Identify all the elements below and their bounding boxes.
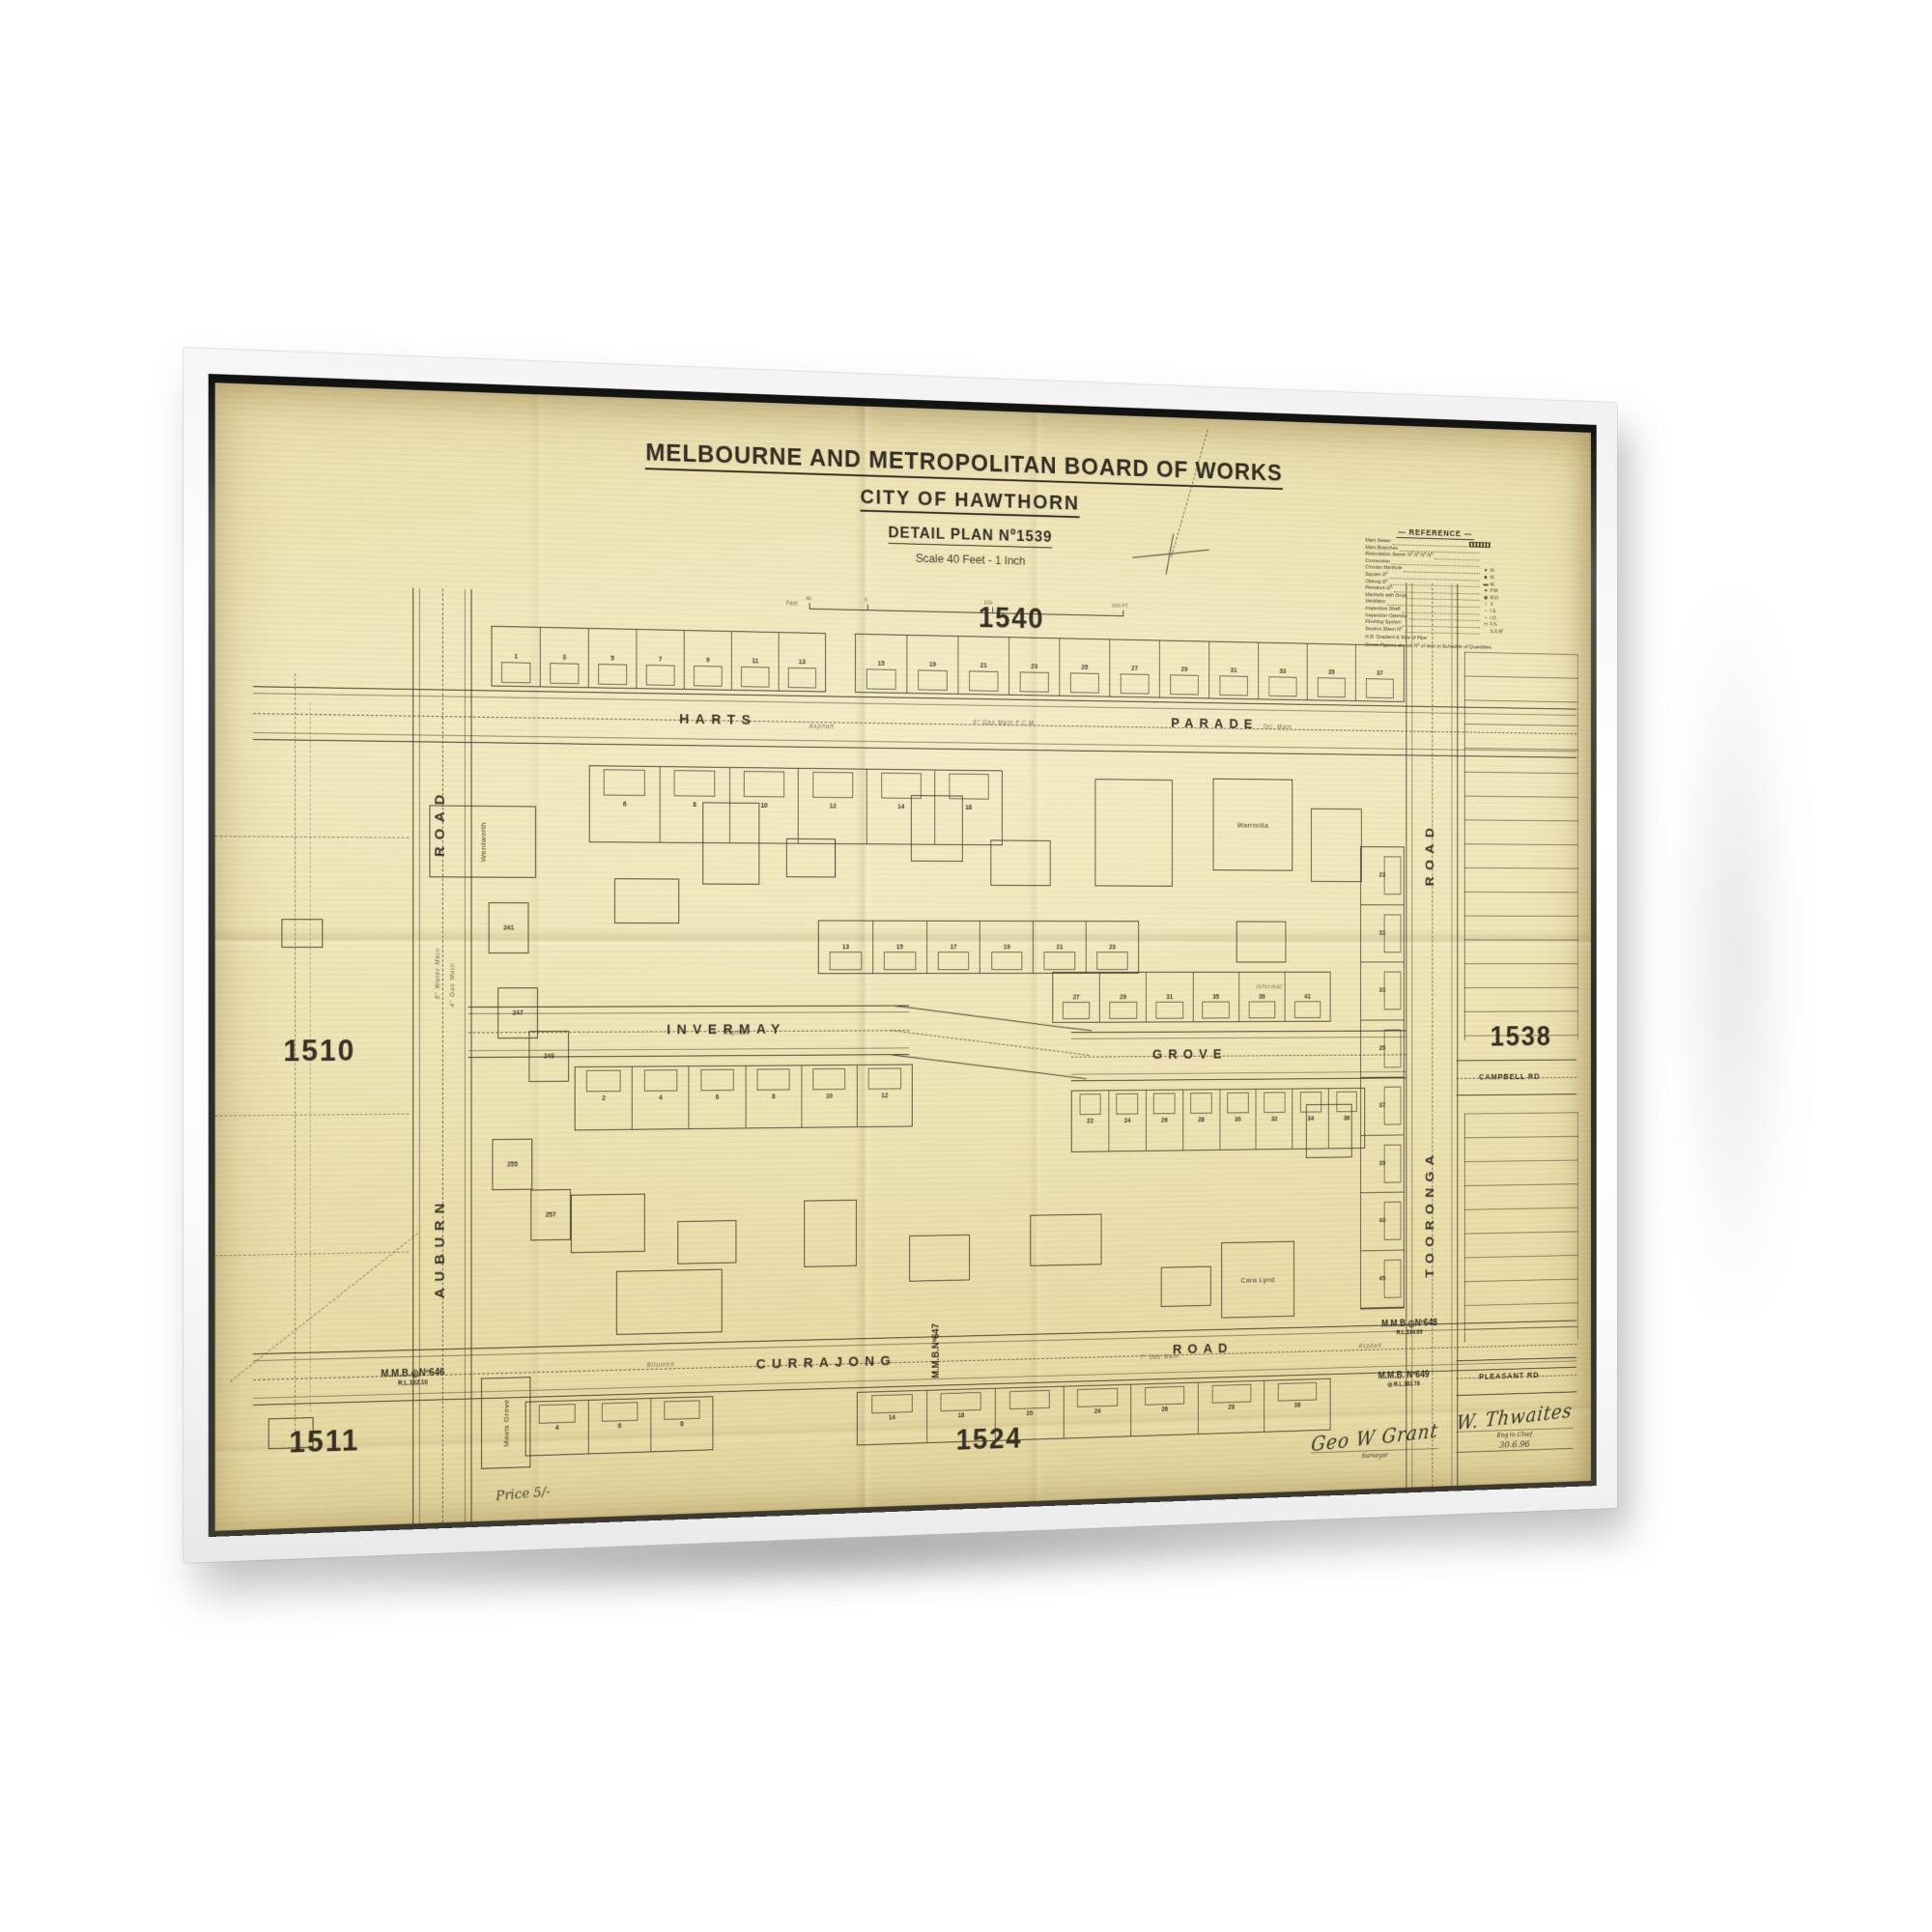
- plan-number-title: DETAIL PLAN Nº1539: [889, 524, 1053, 549]
- lot-strip-harts-north-east: 1519212325272931333537: [855, 634, 1405, 702]
- lot: 11: [732, 632, 780, 691]
- lot-number: 15: [896, 944, 903, 951]
- lot: 19: [980, 922, 1034, 973]
- lot-number: 10: [760, 803, 767, 810]
- villa-name: Cara Lynd: [1240, 1275, 1274, 1284]
- lot: 35: [1361, 1020, 1404, 1078]
- lot: 45: [1361, 1250, 1404, 1309]
- lot-frontage-ticks: [1464, 652, 1578, 1041]
- lot: 27: [1053, 973, 1100, 1022]
- building-outline: [909, 1235, 970, 1282]
- lot-number: 38: [1294, 1402, 1301, 1408]
- lot-strip-harts-north-west: 135791113: [491, 626, 826, 693]
- house-number: 241: [503, 924, 514, 931]
- lot-number: 10: [826, 1093, 833, 1099]
- lot-number: 35: [1328, 669, 1335, 676]
- road-annotation: Asphalt: [724, 1030, 750, 1037]
- road-annotation: Asphalt: [1358, 1343, 1381, 1350]
- lot-number: 12: [881, 1093, 888, 1099]
- lot: 12: [799, 769, 867, 843]
- lot: 26: [1131, 1383, 1198, 1436]
- lot: 21: [958, 637, 1009, 695]
- lot-number: 32: [1271, 1116, 1278, 1122]
- building-outline: [1094, 779, 1172, 887]
- lot: 43: [1361, 1192, 1404, 1250]
- lot: 24: [1064, 1385, 1131, 1438]
- lot-number: 31: [1166, 994, 1173, 1001]
- street-name-parade: PARADE: [1171, 716, 1258, 732]
- lot-number: 12: [830, 803, 837, 810]
- lot-number: 6: [618, 1423, 622, 1430]
- lot-number: 33: [1379, 987, 1386, 993]
- street-name-tooronga: TOORONGA: [1423, 1150, 1436, 1278]
- lot-number: 8: [693, 802, 696, 809]
- lot-number: 23: [1379, 872, 1386, 879]
- lot-number: 25: [1081, 665, 1088, 671]
- street-name-tooronga-road: ROAD: [1423, 822, 1436, 887]
- lot-number: 27: [1073, 994, 1080, 1001]
- lot-number: 18: [957, 1412, 964, 1419]
- lot-number: 28: [1228, 1404, 1235, 1410]
- lot-number: 22: [1087, 1118, 1094, 1124]
- picture-frame: MELBOURNE AND METROPOLITAN BOARD OF WORK…: [184, 348, 1617, 1563]
- road-annotation: 7' Gas Main: [1141, 1353, 1179, 1361]
- framed-canvas: MELBOURNE AND METROPOLITAN BOARD OF WORK…: [184, 348, 1617, 1563]
- lot: 14: [858, 1391, 927, 1445]
- engineer-signature: W. Thwaites Eng in Chief 30.6.96: [1457, 1405, 1573, 1453]
- lot: 23: [1009, 638, 1060, 696]
- lot: 39: [1239, 973, 1285, 1021]
- villa-cara-lynd: Cara Lynd: [1221, 1241, 1294, 1319]
- villa-mavis-grove: Mavis Grove: [481, 1377, 530, 1469]
- lot-number: 15: [878, 661, 885, 668]
- house-auburn: 241: [489, 902, 529, 953]
- lot-number: 37: [1379, 1103, 1386, 1110]
- lot: 27: [1110, 639, 1160, 696]
- scale-bar-unit: Feet: [786, 601, 798, 608]
- lot-number: 35: [1212, 994, 1219, 1001]
- lot-number: 21: [1057, 944, 1064, 951]
- lot-number: 6: [716, 1094, 720, 1100]
- lot-number: 4: [555, 1425, 559, 1432]
- wall-shadow: [1662, 415, 1806, 1497]
- lot: 31: [1209, 642, 1259, 699]
- lot-number: 19: [929, 662, 936, 668]
- scale-tick-label: 200 FT.: [1112, 604, 1129, 610]
- lot: 4: [633, 1066, 690, 1129]
- lot: 20: [996, 1387, 1065, 1440]
- building-outline: [677, 1220, 736, 1264]
- lot: 2: [576, 1067, 633, 1130]
- lot-number: 43: [1379, 1218, 1386, 1225]
- lot: 19: [907, 636, 958, 694]
- street-name-currajong-road: ROAD: [1173, 1341, 1234, 1358]
- surveyor-signature: Geo W Grant Surveyor: [1311, 1425, 1438, 1462]
- lot-strip-tooronga-west: 2331333537394345: [1360, 846, 1405, 1309]
- lot: 29: [1100, 973, 1147, 1022]
- lot: 38: [1264, 1379, 1329, 1432]
- villa-name: Warrinilla: [1237, 820, 1269, 829]
- street-name-pleasant: PLEASANT RD: [1479, 1371, 1539, 1381]
- lot-number: 5: [611, 655, 614, 662]
- lot: 31: [1147, 973, 1193, 1022]
- frame-shadow-gap: MELBOURNE AND METROPOLITAN BOARD OF WORK…: [209, 374, 1597, 1537]
- lot: 8: [746, 1065, 802, 1127]
- lot-number: 23: [1109, 944, 1116, 951]
- lot-number: 24: [1124, 1118, 1131, 1124]
- lot-number: 35: [1379, 1045, 1386, 1052]
- lot-number: 7: [659, 656, 663, 663]
- lot: 6: [690, 1066, 746, 1128]
- building-outline: [702, 802, 759, 884]
- villa-name: Wentworth: [479, 821, 488, 862]
- lot: 26: [1147, 1091, 1183, 1151]
- benchmark-id: M.M.B.◎Nº646: [381, 1368, 444, 1380]
- lot: 35: [1193, 973, 1239, 1022]
- lot: 37: [1361, 1077, 1404, 1135]
- lot: 7: [637, 630, 684, 689]
- lot: 35: [1308, 644, 1356, 700]
- legend-symbol: ▭: [1481, 622, 1490, 629]
- lot-number: 17: [951, 944, 957, 951]
- lot: 5: [589, 629, 638, 688]
- villa-name: Mavis Grove: [501, 1399, 510, 1447]
- lot: 13: [819, 921, 873, 973]
- lot-number: 16: [965, 805, 972, 811]
- lot: 17: [927, 922, 980, 973]
- lot: 23: [1361, 847, 1404, 905]
- lot-number: 20: [1026, 1410, 1033, 1417]
- lot-strip-grove-north: 272931353941: [1052, 972, 1330, 1023]
- building-outline: [281, 919, 323, 948]
- house-number: 255: [507, 1161, 518, 1168]
- lot-number: 27: [1131, 666, 1138, 672]
- lot: 23: [1087, 922, 1138, 973]
- lot: 8: [651, 1397, 712, 1451]
- house-auburn: 249: [528, 1031, 569, 1082]
- building-outline: [614, 878, 679, 923]
- sewer-line-symbol: [1469, 542, 1491, 548]
- road-annotation: Tel. Main: [1263, 724, 1292, 731]
- building-outline: [804, 1200, 857, 1267]
- lot-strip-invermay-north: 131517192123: [818, 921, 1139, 975]
- lot-strip-invermay-south: 24681012: [575, 1065, 913, 1131]
- house-number: 257: [546, 1211, 556, 1218]
- house-number: 249: [544, 1053, 554, 1060]
- lot-strip-currajong-south-east: 14182024262838: [857, 1378, 1331, 1446]
- street-name-grove: GROVE: [1152, 1046, 1227, 1062]
- lot-number: 14: [889, 1414, 895, 1421]
- lot: 13: [780, 633, 826, 691]
- lot: 41: [1285, 973, 1329, 1021]
- scale-tick-label: 40: [806, 596, 811, 602]
- boundary-line: [295, 673, 296, 1431]
- street-name-currajong: CURRAJONG: [756, 1353, 897, 1373]
- house-auburn: 255: [492, 1139, 532, 1190]
- lot: 30: [1220, 1090, 1257, 1150]
- lot-number: 2: [602, 1095, 606, 1102]
- lot-number: 23: [1031, 664, 1037, 670]
- boundary-line: [215, 1252, 410, 1257]
- road-annotation: Informal: [1256, 984, 1282, 991]
- lot: 12: [858, 1065, 912, 1127]
- lot-number: 41: [1304, 993, 1311, 1000]
- lot: 24: [1109, 1091, 1146, 1151]
- benchmark-id: M.M.B.◎Nº648: [1381, 1319, 1437, 1330]
- lot: 21: [1034, 922, 1087, 973]
- lot-number: 14: [897, 804, 904, 810]
- lot: 6: [590, 766, 661, 841]
- lot-number: 28: [1198, 1117, 1205, 1123]
- benchmark-label: M.M.B. Nº649◎ R.L.182.76: [1378, 1370, 1430, 1388]
- lot-strip-currajong-south-west: 468: [526, 1396, 714, 1456]
- villa-warrinilla: Warrinilla: [1213, 779, 1293, 871]
- legend-label: Section Sheet Nº: [1365, 626, 1403, 634]
- signature-date: 30.6.96: [1457, 1438, 1573, 1453]
- lot-number: 26: [1161, 1117, 1168, 1123]
- lot-number: 31: [1231, 668, 1237, 674]
- lot-number: 33: [1280, 668, 1287, 675]
- boundary-line: [215, 1114, 410, 1117]
- lot-number: 9: [706, 657, 710, 664]
- building-outline: [990, 839, 1050, 886]
- legend-abbr: S.S.Nº: [1491, 629, 1505, 636]
- villa-wentworth: Wentworth: [429, 805, 536, 877]
- lot: 39: [1361, 1135, 1404, 1193]
- lot-number: 4: [659, 1094, 663, 1101]
- lot-number: 11: [752, 658, 758, 665]
- boundary-line: [310, 702, 311, 1411]
- lot-number: 13: [799, 659, 806, 666]
- lot-number: 45: [1379, 1275, 1386, 1282]
- lot: 33: [1361, 962, 1404, 1020]
- adjacent-plan-number: 1540: [979, 601, 1044, 636]
- building-outline: [1311, 809, 1362, 882]
- street-name-harts: HARTS: [679, 711, 756, 728]
- house-number: 247: [513, 1009, 524, 1016]
- house-auburn: 257: [530, 1189, 571, 1240]
- lot: 29: [1160, 640, 1209, 697]
- building-outline: [911, 795, 963, 862]
- lot: 9: [685, 631, 732, 690]
- lot: 28: [1199, 1381, 1265, 1434]
- scale-tick-label: 0: [865, 598, 867, 604]
- building-outline: [269, 1417, 314, 1449]
- benchmark-label: M.M.B.Nº647: [932, 1323, 942, 1378]
- lot: 22: [1072, 1091, 1110, 1151]
- lot-number: 31: [1379, 930, 1386, 936]
- building-outline: [616, 1269, 723, 1335]
- lot-number: 6: [623, 801, 627, 808]
- building-outline: [1030, 1214, 1101, 1266]
- lot: 33: [1259, 643, 1308, 700]
- legend-title: REFERENCE: [1397, 527, 1474, 540]
- building-outline: [786, 838, 836, 878]
- lot: 10: [802, 1065, 858, 1127]
- lot-frontage-ticks: [1464, 1112, 1578, 1342]
- lot-number: 30: [1235, 1117, 1241, 1123]
- road-annotation: Asphalt: [810, 724, 835, 730]
- lot-number: 24: [1094, 1408, 1101, 1415]
- map-paper: MELBOURNE AND METROPOLITAN BOARD OF WORK…: [215, 383, 1591, 1531]
- benchmark-label: M.M.B.◎Nº646R.L.132.10: [381, 1368, 444, 1387]
- lot: 15: [856, 635, 907, 693]
- lot-number: 29: [1120, 994, 1126, 1001]
- lot: 3: [541, 628, 589, 687]
- lot-number: 3: [562, 654, 566, 661]
- lot: 4: [526, 1401, 589, 1456]
- lot-number: 19: [1004, 944, 1010, 951]
- lot: 25: [1060, 639, 1110, 696]
- lot: 31: [1361, 905, 1404, 963]
- lot: 1: [492, 627, 540, 687]
- lot-number: 37: [1377, 670, 1383, 677]
- lot-number: 39: [1259, 994, 1265, 1001]
- lot-number: 26: [1161, 1406, 1168, 1413]
- lot-number: 21: [980, 663, 987, 669]
- lot: 15: [873, 922, 927, 974]
- boundary-line: [215, 836, 410, 838]
- lot: 37: [1356, 645, 1404, 701]
- lot-number: 1: [514, 653, 518, 660]
- lot: 32: [1257, 1090, 1293, 1150]
- benchmark-id: M.M.B. Nº649: [1378, 1370, 1430, 1381]
- lot-number: 39: [1379, 1160, 1386, 1167]
- street-name-auburn: AUBURN: [432, 1197, 447, 1299]
- road-annotation: Bitumen: [647, 1362, 675, 1370]
- lot: 6: [589, 1399, 652, 1453]
- street-name-campbell: CAMPBELL RD: [1479, 1072, 1540, 1082]
- building-outline: [571, 1194, 645, 1254]
- building-outline: [1161, 1266, 1211, 1307]
- lot-number: 29: [1181, 667, 1188, 673]
- lot-number: 8: [680, 1421, 684, 1428]
- road-grove: GROVE: [1071, 1031, 1406, 1082]
- lot-number: 8: [772, 1094, 776, 1100]
- road-tooronga: TOORONGA ROAD: [1406, 582, 1458, 1488]
- lot-number: 13: [842, 944, 849, 951]
- lot: 28: [1183, 1090, 1220, 1150]
- lot: 18: [927, 1389, 996, 1442]
- road-annotation: 6" Water Main: [435, 948, 441, 999]
- building-outline: [1306, 1104, 1352, 1158]
- building-outline: [1236, 922, 1287, 963]
- benchmark-id: M.M.B.Nº647: [932, 1323, 942, 1378]
- road-annotation: 6" Gas Main F.C.M.: [974, 720, 1037, 727]
- road-annotation: 4" Gas Main: [450, 963, 457, 1008]
- benchmark-label: M.M.B.◎Nº648R.L.134.69: [1381, 1319, 1437, 1337]
- road-pleasant: PLEASANT RD: [1457, 1357, 1577, 1396]
- road-campbell: CAMPBELL RD: [1457, 1060, 1577, 1096]
